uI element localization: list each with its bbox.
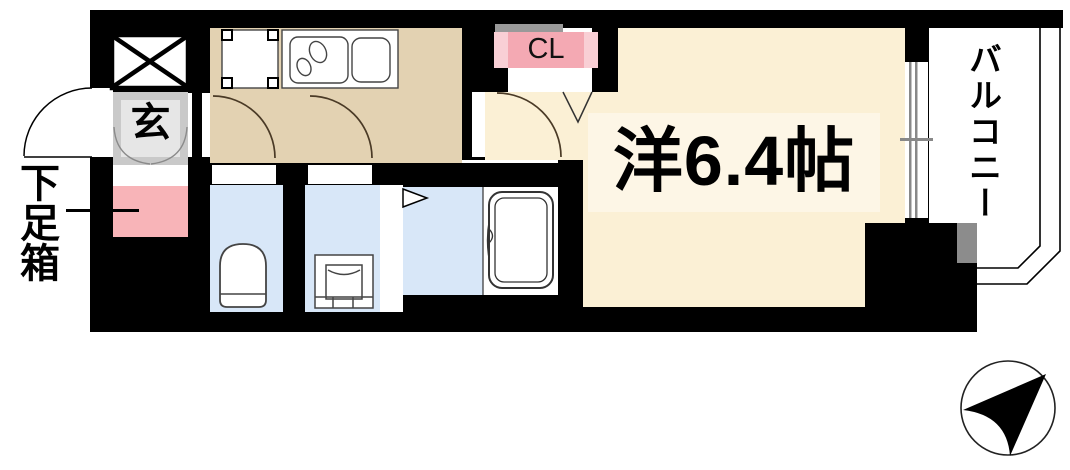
washing-machine-icon [315, 255, 373, 308]
main-room-label: 洋6.4帖 [588, 111, 880, 211]
shoe-box [66, 186, 188, 237]
kitchen-counter-icon [282, 30, 398, 88]
pipe-shaft-icon [112, 35, 188, 88]
compass-north-icon [961, 361, 1055, 456]
refrigerator-space-icon [222, 30, 278, 88]
toilet-icon [220, 244, 266, 307]
entrance-door-icon [24, 88, 92, 157]
floorplan-canvas: 玄 下足箱 CL 洋6.4帖 バルコニー [0, 0, 1070, 470]
balcony-label: バルコニー [960, 42, 1006, 282]
bathtub-icon [489, 192, 553, 288]
sink-icon [352, 38, 390, 82]
entrance-label: 玄 [113, 94, 188, 152]
floorplan-drawing [0, 0, 1070, 470]
shoe-box-label: 下足箱 [12, 162, 60, 312]
closet-label: CL [494, 30, 598, 68]
